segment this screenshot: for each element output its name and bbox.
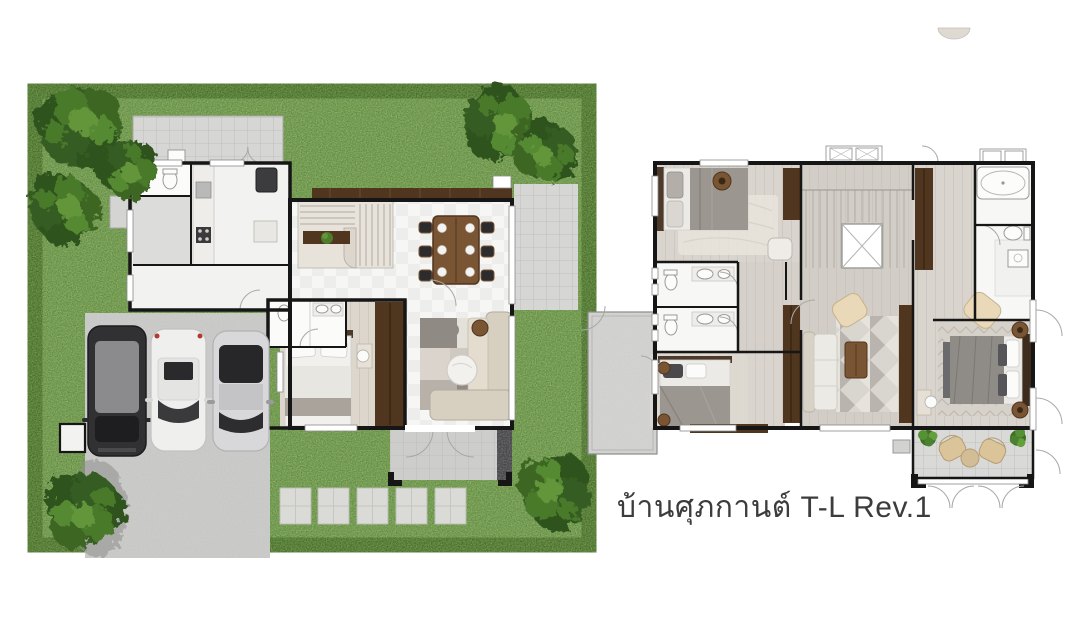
wardrobe [783,168,801,220]
plan-title-caption: บ้านศุภกานต์ T-L Rev.1 [617,484,937,531]
second-floor-plan [588,28,1062,508]
bed-bench [943,342,950,398]
bed [657,167,748,231]
desk-chair [925,396,937,408]
nightstand [658,362,670,374]
sink [316,305,328,313]
car-white-sedan [145,329,212,451]
sink [697,269,713,279]
ac-unit [893,440,910,453]
coffee-table [447,355,477,385]
toilet [665,319,677,335]
kitchen-sink [196,182,211,198]
floor-plan-artwork [0,0,1080,640]
left-balcony [588,312,657,454]
car-silver-sedan [207,331,274,451]
rug [938,28,970,39]
sofa-chaise [430,390,512,420]
desk-chair [357,350,369,362]
living-set [420,312,512,420]
parked-cars [82,326,274,456]
maid-room [133,196,191,265]
shower-area [995,240,1031,296]
side-patio [514,184,578,310]
ground-floor-plan [12,75,602,558]
stove [196,227,211,243]
kitchen-island [254,221,277,242]
bed [943,334,1031,406]
staircase [298,200,393,268]
sink [331,305,341,313]
armchair [768,238,792,260]
toilet [665,274,677,290]
refrigerator [256,168,277,192]
ac-unit [493,176,511,188]
gate-meter-box [60,424,85,452]
kitchen-counter [193,165,214,265]
sink [697,314,713,324]
front-porch [388,428,512,486]
nightstand [658,414,670,426]
guest-bathroom [268,300,346,347]
sink [1008,250,1028,267]
stepping-stones [280,488,466,524]
sofa [803,332,837,412]
floorplan-render-page: บ้านศุภกานต์ T-L Rev.1 [0,0,1080,640]
pouf [445,323,459,337]
car-dark-mpv [82,326,152,456]
toilet [1004,226,1022,240]
side-table [961,449,979,467]
dining-set [419,216,494,284]
side-pouf [472,320,488,336]
